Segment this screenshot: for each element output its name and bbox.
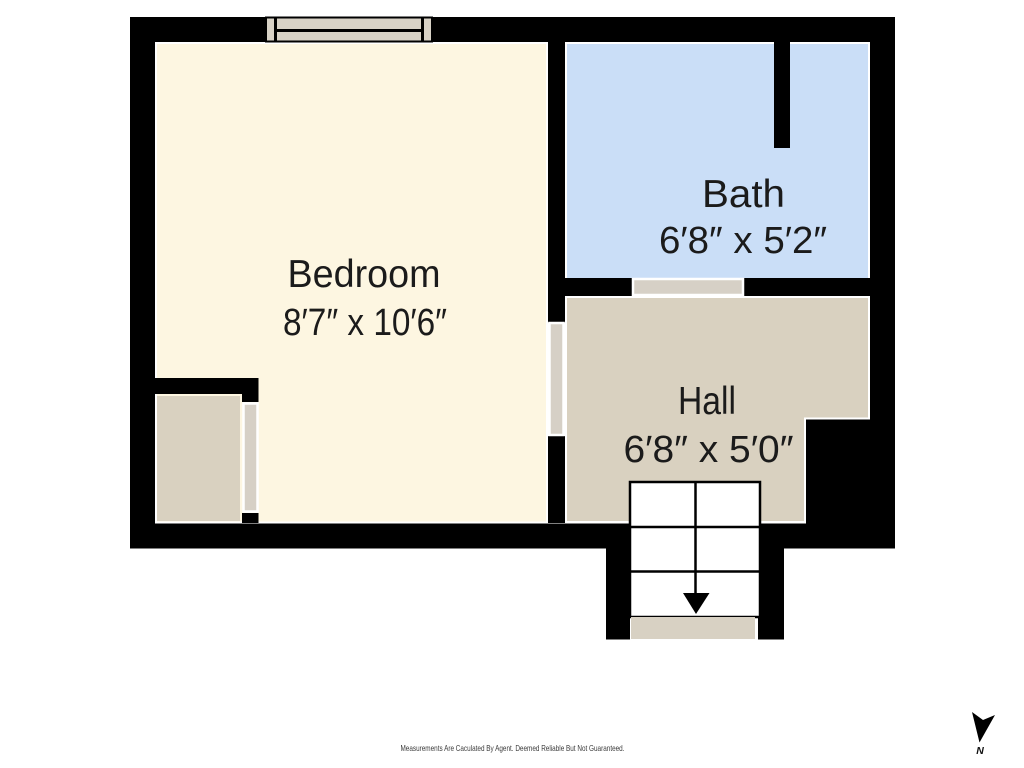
- svg-text:Bath: Bath: [702, 173, 785, 216]
- svg-text:6′8″ x 5′2″: 6′8″ x 5′2″: [659, 220, 827, 262]
- svg-text:8′7″ x 10′6″: 8′7″ x 10′6″: [283, 302, 447, 344]
- svg-text:Hall: Hall: [678, 380, 736, 423]
- svg-text:6′8″ x 5′0″: 6′8″ x 5′0″: [624, 429, 794, 471]
- svg-text:N: N: [976, 745, 984, 757]
- svg-text:Measurements Are Caculated By: Measurements Are Caculated By Agent. Dee…: [401, 743, 625, 753]
- svg-text:Bedroom: Bedroom: [288, 253, 441, 296]
